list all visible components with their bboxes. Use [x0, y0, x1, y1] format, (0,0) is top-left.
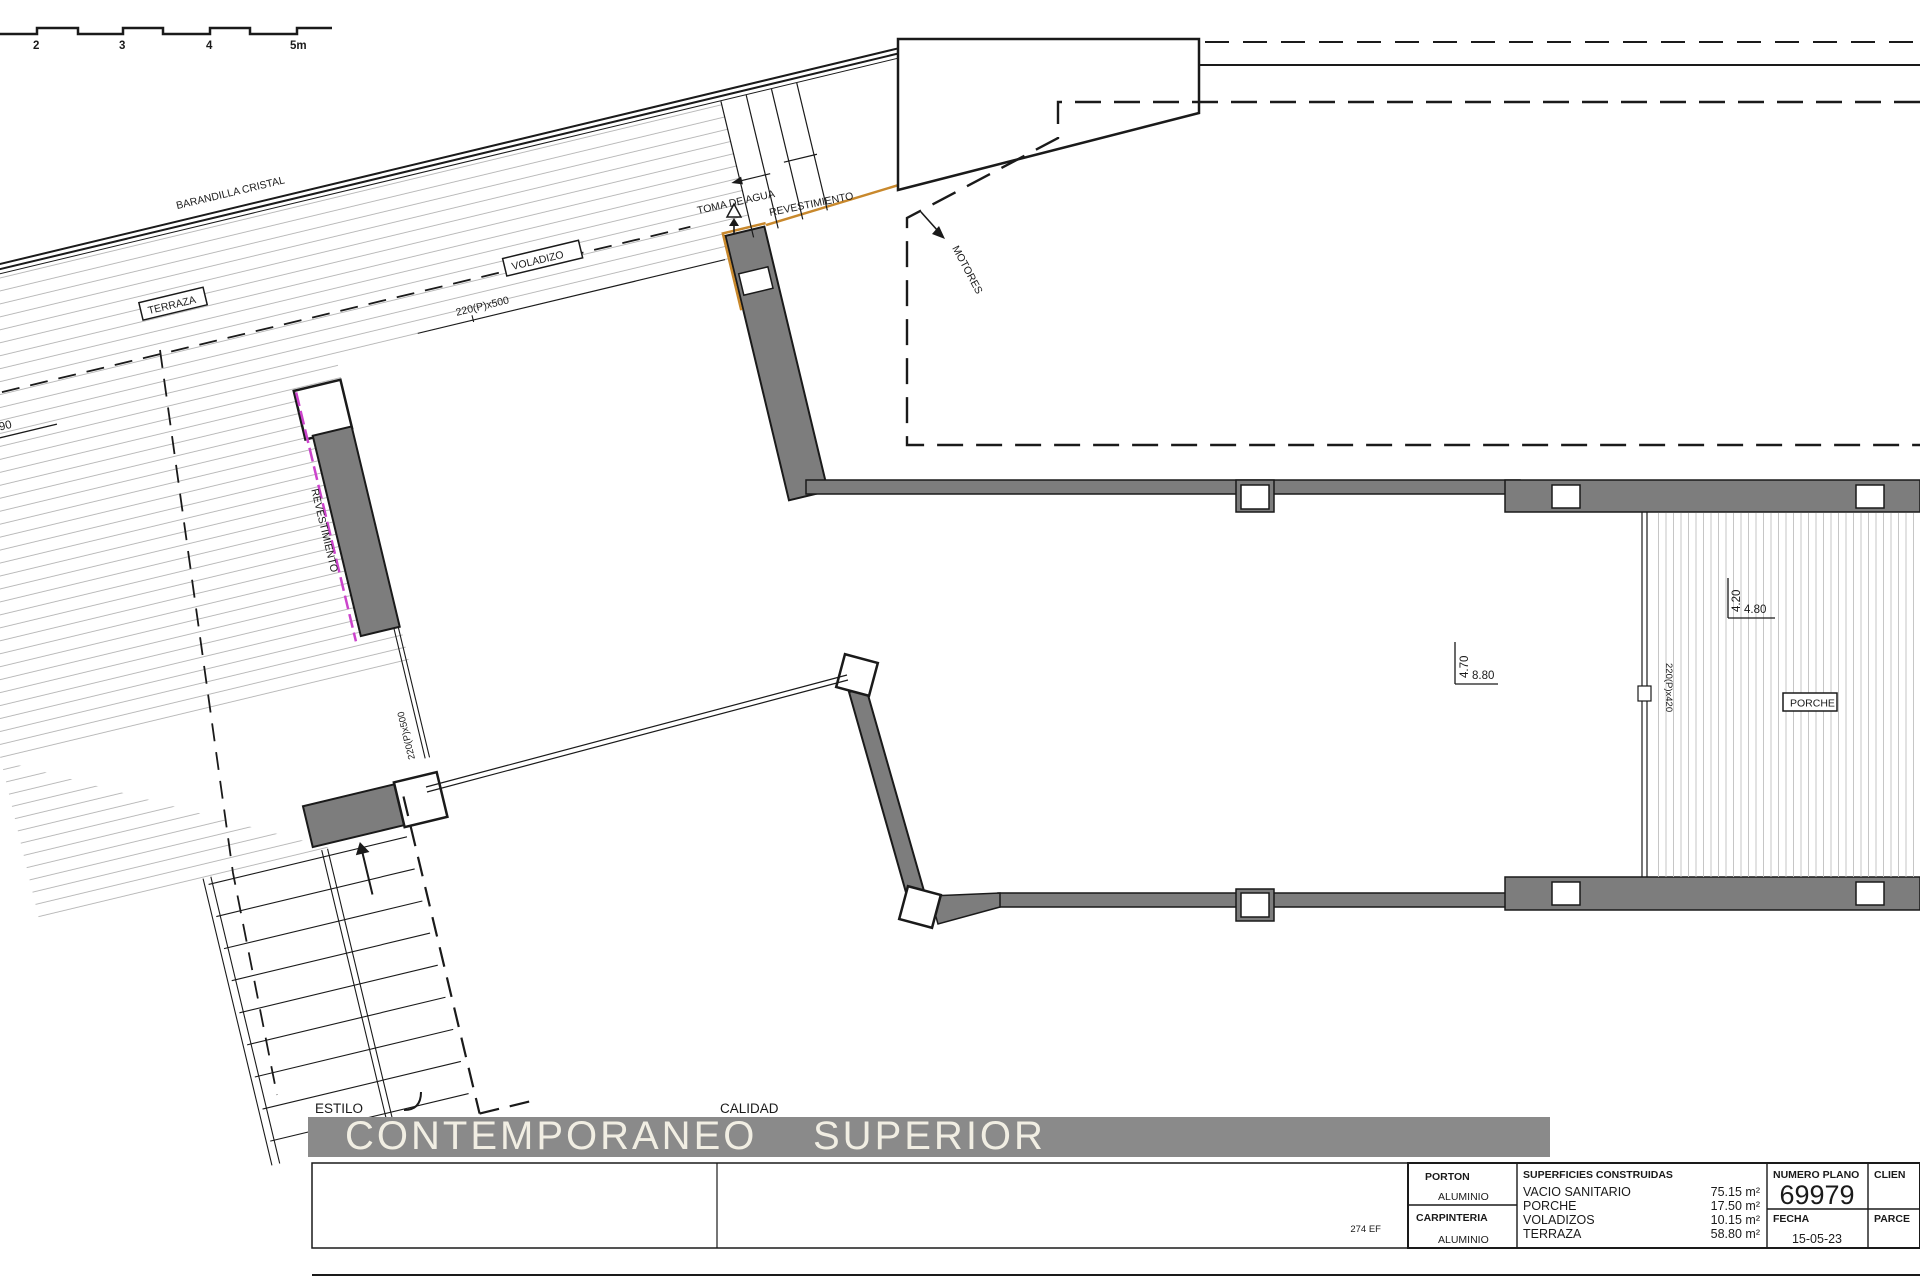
superficie-row-value: 58.80 m² — [1711, 1227, 1760, 1241]
parcela-label: PARCE — [1874, 1213, 1910, 1225]
center-diagonal-wall — [849, 688, 924, 896]
numero-plano-value: 69979 — [1779, 1180, 1854, 1210]
porch-label: PORCHE — [1790, 698, 1835, 710]
porton-label: PORTON — [1425, 1171, 1470, 1183]
top-wall-pillar-2 — [1552, 485, 1580, 508]
wall-bottom-left-pillar — [394, 772, 448, 827]
carpinteria-label: CARPINTERIA — [1416, 1212, 1488, 1224]
corner-pillar-upper — [836, 654, 878, 696]
superficie-row-name: TERRAZA — [1523, 1227, 1582, 1241]
upper-building-outline — [898, 39, 1199, 190]
wall-bottom-left — [303, 784, 406, 847]
porch-dim-420: 4.20 — [1731, 590, 1743, 612]
top-steps-ticks — [733, 154, 818, 182]
top-wall-thin — [806, 480, 1520, 494]
footer-box — [312, 1163, 1408, 1248]
porch-window-label: 220(P)x420 — [1663, 663, 1674, 712]
scale-label-5m: 5m — [290, 40, 307, 52]
scale-label-4: 4 — [206, 40, 213, 52]
cliente-label: CLIEN — [1874, 1169, 1906, 1181]
superficie-row-value: 75.15 m² — [1711, 1185, 1760, 1199]
stairs-arrow-shaft — [362, 850, 373, 895]
stairs-boundary-dashed — [403, 782, 539, 1113]
calidad-value: SUPERIOR — [813, 1114, 1046, 1158]
superficie-row-name: VACIO SANITARIO — [1523, 1185, 1631, 1199]
motores-label: MOTORES — [949, 244, 984, 296]
cladding-top-label: REVESTIMIENTO — [768, 190, 854, 219]
estilo-value: CONTEMPORANEO — [345, 1114, 757, 1158]
terrace-group: BARANDILLA CRISTAL TERRAZA VOLADIZO 10.9… — [0, 28, 1121, 1213]
bottom-wall-pillar-2 — [1552, 882, 1580, 905]
superficie-row-name: VOLADIZOS — [1523, 1213, 1595, 1227]
stairs-left-edge — [203, 877, 280, 1166]
roof-overhang-dashed — [907, 102, 1920, 445]
motores-arrow-head — [932, 226, 945, 239]
superficie-row-value: 17.50 m² — [1711, 1199, 1760, 1213]
stairs-treads — [209, 837, 469, 1141]
floor-plan-drawing: BARANDILLA CRISTAL TERRAZA VOLADIZO 10.9… — [0, 0, 1920, 1280]
motores-arrow-shaft — [921, 212, 938, 231]
living-dim-880: 8.80 — [1472, 670, 1494, 682]
railing-label: BARANDILLA CRISTAL — [175, 174, 286, 212]
fecha-value: 15-05-23 — [1792, 1232, 1842, 1246]
carpinteria-value: ALUMINIO — [1438, 1234, 1489, 1246]
superficies-header: SUPERFICIES CONSTRUIDAS — [1523, 1169, 1673, 1181]
porton-value: ALUMINIO — [1438, 1191, 1489, 1203]
floor-plan-sheet: BARANDILLA CRISTAL TERRAZA VOLADIZO 10.9… — [0, 0, 1920, 1280]
porch-dim-480: 4.80 — [1744, 604, 1766, 616]
top-wall-pillar-3 — [1856, 485, 1884, 508]
living-dim-470: 4.70 — [1459, 656, 1471, 678]
fecha-label: FECHA — [1773, 1213, 1810, 1225]
superficie-row-name: PORCHE — [1523, 1199, 1576, 1213]
scale-label-3: 3 — [119, 40, 125, 52]
porch-glazing-joint — [1638, 686, 1651, 701]
top-wall-pillar-1 — [1241, 485, 1269, 509]
scale-bar — [0, 28, 332, 34]
corner-pillar-lower — [899, 886, 941, 928]
window-left-label: 220(P)x500 — [396, 710, 418, 760]
bottom-wall-pillar-3 — [1856, 882, 1884, 905]
bottom-wall-pillar-1 — [1241, 893, 1269, 917]
scale-label-2: 2 — [33, 40, 39, 52]
superficie-row-value: 10.15 m² — [1711, 1213, 1760, 1227]
ref-code: 274 EF — [1350, 1224, 1381, 1235]
